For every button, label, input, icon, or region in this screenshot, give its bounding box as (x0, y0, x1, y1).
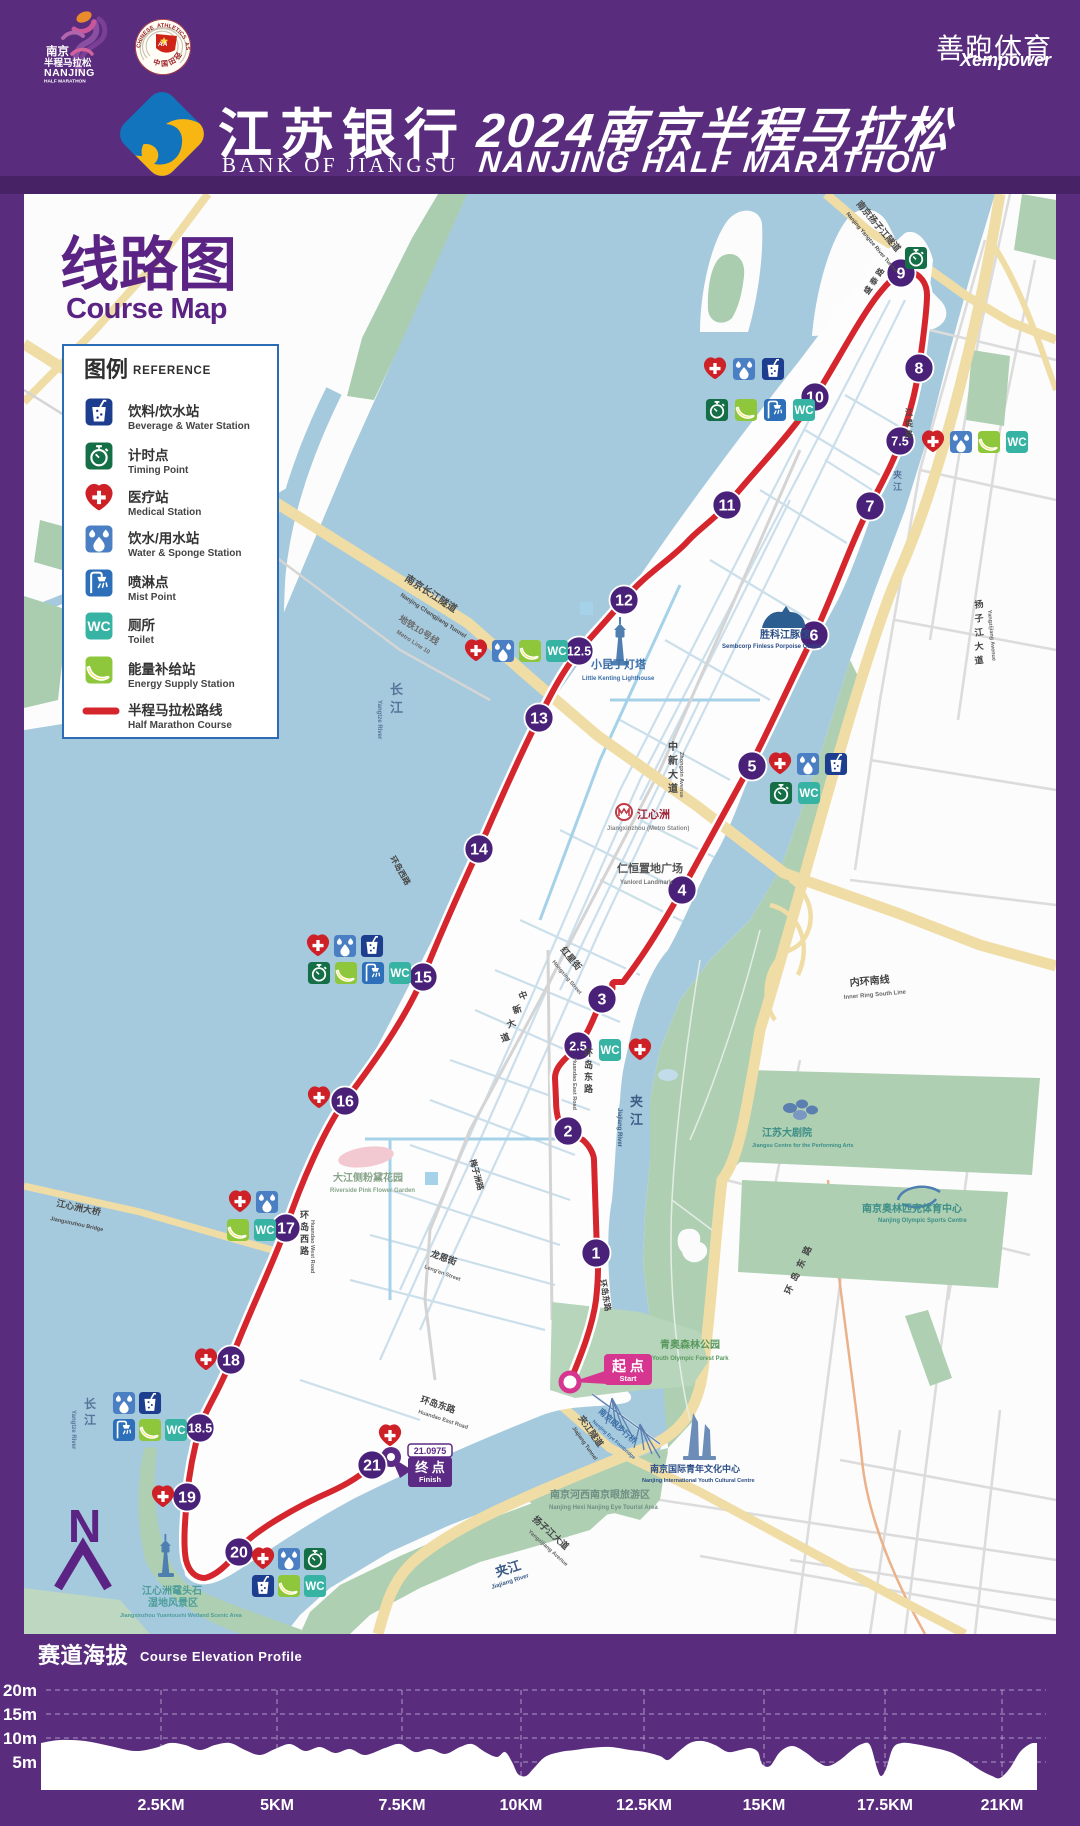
svg-text:Riverside Pink Flower Garden: Riverside Pink Flower Garden (330, 1188, 415, 1194)
svg-text:Jiajiang River: Jiajiang River (616, 1108, 622, 1148)
svg-text:江: 江 (630, 1112, 643, 1127)
svg-text:新: 新 (668, 754, 678, 767)
svg-text:2.5KM: 2.5KM (137, 1797, 184, 1814)
svg-text:厕所: 厕所 (128, 617, 155, 633)
svg-text:10KM: 10KM (500, 1797, 543, 1814)
svg-text:Course Elevation Profile: Course Elevation Profile (140, 1649, 302, 1664)
svg-text:Water & Sponge Station: Water & Sponge Station (128, 548, 242, 559)
svg-text:大: 大 (668, 768, 678, 781)
svg-text:医疗站: 医疗站 (128, 489, 169, 505)
svg-text:江: 江 (84, 1412, 96, 1427)
svg-text:NANJING: NANJING (44, 67, 95, 79)
svg-text:Course Map: Course Map (66, 293, 227, 325)
svg-text:12.5KM: 12.5KM (616, 1797, 672, 1814)
svg-text:夹: 夹 (630, 1094, 643, 1109)
svg-text:Jiangxinzhou Yuantoushi Wetlan: Jiangxinzhou Yuantoushi Wetland Scenic A… (120, 1613, 243, 1619)
svg-text:Yangtze River: Yangtze River (70, 1410, 76, 1450)
svg-text:6: 6 (810, 628, 819, 645)
svg-text:青奥森林公园: 青奥森林公园 (660, 1338, 720, 1351)
svg-text:计时点: 计时点 (128, 447, 169, 463)
svg-text:能量补给站: 能量补给站 (128, 661, 196, 677)
svg-text:南京奥林匹克体育中心: 南京奥林匹克体育中心 (862, 1202, 962, 1215)
svg-text:Nanjing Olympic Sports Centre: Nanjing Olympic Sports Centre (878, 1218, 967, 1224)
svg-text:Huandao East Road: Huandao East Road (571, 1058, 577, 1110)
svg-text:AA: AA (157, 41, 168, 48)
svg-text:Nanjing Hexi Nanjing Eye Touri: Nanjing Hexi Nanjing Eye Tourist Area (549, 1505, 658, 1511)
svg-text:12.5: 12.5 (567, 645, 591, 659)
svg-text:7: 7 (866, 499, 875, 516)
svg-text:17: 17 (277, 1221, 295, 1238)
svg-text:道: 道 (974, 654, 984, 666)
svg-text:胜科江豚馆: 胜科江豚馆 (759, 628, 810, 641)
svg-text:起 点: 起 点 (611, 1358, 644, 1374)
svg-text:线路图: 线路图 (60, 232, 237, 298)
svg-text:Finish: Finish (419, 1475, 442, 1484)
svg-text:Timing Point: Timing Point (128, 465, 189, 476)
svg-text:3: 3 (598, 992, 607, 1009)
svg-text:南京国际青年文化中心: 南京国际青年文化中心 (650, 1463, 740, 1474)
svg-text:5: 5 (748, 759, 757, 776)
svg-text:Half Marathon Course: Half Marathon Course (128, 720, 232, 731)
svg-text:2: 2 (564, 1124, 573, 1141)
svg-text:大: 大 (974, 640, 984, 652)
svg-text:江心洲鼋头石: 江心洲鼋头石 (142, 1584, 202, 1597)
svg-text:路: 路 (905, 429, 914, 439)
svg-text:Zhongxin Avenue: Zhongxin Avenue (678, 752, 684, 798)
svg-text:扬: 扬 (974, 598, 984, 610)
svg-text:HALF MARATHON: HALF MARATHON (44, 79, 86, 85)
svg-text:江心洲: 江心洲 (637, 807, 670, 821)
svg-text:Nanjing International Youth Cu: Nanjing International Youth Cultural Cen… (642, 1478, 755, 1484)
svg-text:南京河西南京眼旅游区: 南京河西南京眼旅游区 (550, 1488, 650, 1501)
svg-text:13: 13 (530, 711, 548, 728)
svg-text:东: 东 (584, 1071, 593, 1082)
svg-text:子: 子 (974, 613, 984, 624)
svg-text:岛: 岛 (300, 1221, 309, 1232)
svg-text:Sembcorp Finless Porpoise Cent: Sembcorp Finless Porpoise Centre (722, 644, 822, 650)
svg-text:15m: 15m (3, 1705, 37, 1724)
svg-text:环: 环 (584, 1048, 593, 1058)
svg-text:Jiangsu Centre for the Perform: Jiangsu Centre for the Performing Arts (752, 1143, 854, 1149)
svg-text:Jiangxinzhou (Metro Station): Jiangxinzhou (Metro Station) (607, 826, 689, 832)
svg-text:9: 9 (897, 266, 906, 283)
svg-text:江: 江 (893, 481, 902, 492)
svg-text:Energy Supply Station: Energy Supply Station (128, 679, 235, 690)
svg-text:赛道海拔: 赛道海拔 (37, 1643, 129, 1668)
svg-text:1: 1 (592, 1246, 601, 1263)
svg-text:Toilet: Toilet (128, 635, 155, 646)
svg-text:14: 14 (470, 842, 488, 859)
svg-text:18.5: 18.5 (188, 1422, 212, 1436)
svg-text:Medical Station: Medical Station (128, 507, 201, 518)
svg-text:饮水/用水站: 饮水/用水站 (127, 530, 200, 546)
svg-text:Yangtze River: Yangtze River (376, 700, 382, 740)
svg-text:Youth Olympic Forest Park: Youth Olympic Forest Park (652, 1356, 729, 1362)
svg-text:21KM: 21KM (981, 1797, 1024, 1814)
svg-text:江苏大剧院: 江苏大剧院 (762, 1126, 812, 1139)
svg-text:17.5KM: 17.5KM (857, 1797, 913, 1814)
svg-text:15: 15 (414, 970, 432, 987)
svg-text:19: 19 (178, 1490, 196, 1507)
svg-text:长: 长 (84, 1396, 97, 1411)
svg-text:11: 11 (719, 498, 736, 515)
svg-text:15KM: 15KM (743, 1797, 786, 1814)
svg-text:喷淋点: 喷淋点 (128, 574, 169, 590)
svg-text:REFERENCE: REFERENCE (133, 365, 211, 377)
svg-text:5KM: 5KM (260, 1797, 294, 1814)
svg-text:湿地风景区: 湿地风景区 (148, 1596, 198, 1609)
svg-text:Yanlord Landmark: Yanlord Landmark (620, 880, 673, 886)
svg-text:12: 12 (615, 593, 633, 610)
svg-text:岛: 岛 (584, 1059, 593, 1070)
svg-text:图例: 图例 (84, 357, 128, 382)
svg-text:5m: 5m (12, 1753, 37, 1772)
svg-text:8: 8 (915, 361, 924, 378)
svg-text:4: 4 (678, 883, 687, 900)
svg-text:终 点: 终 点 (415, 1460, 445, 1475)
svg-text:江: 江 (390, 700, 403, 715)
svg-text:路: 路 (300, 1245, 310, 1256)
svg-text:中: 中 (668, 740, 678, 753)
svg-text:西: 西 (300, 1234, 309, 1244)
svg-text:16: 16 (336, 1094, 354, 1111)
svg-text:长: 长 (390, 682, 404, 697)
svg-text:Huandao West Road: Huandao West Road (309, 1220, 315, 1273)
svg-text:Beverage & Water Station: Beverage & Water Station (128, 421, 250, 432)
svg-text:7.5KM: 7.5KM (378, 1797, 425, 1814)
svg-text:Little Kenting Lighthouse: Little Kenting Lighthouse (582, 676, 655, 682)
svg-text:20m: 20m (3, 1681, 37, 1700)
svg-text:堤: 堤 (905, 418, 914, 428)
svg-text:18: 18 (222, 1353, 240, 1370)
svg-text:江: 江 (974, 626, 984, 638)
svg-text:Start: Start (619, 1374, 637, 1383)
svg-text:江: 江 (905, 407, 913, 417)
svg-text:小昆丁灯塔: 小昆丁灯塔 (590, 657, 647, 671)
svg-text:环: 环 (300, 1210, 309, 1220)
svg-text:仁恒置地广场: 仁恒置地广场 (617, 861, 683, 875)
svg-text:Mist Point: Mist Point (128, 592, 176, 603)
svg-text:路: 路 (584, 1083, 594, 1094)
svg-text:半程马拉松路线: 半程马拉松路线 (128, 702, 223, 718)
svg-text:饮料/饮水站: 饮料/饮水站 (127, 403, 200, 419)
svg-text:20: 20 (230, 1545, 248, 1562)
svg-text:10m: 10m (3, 1729, 37, 1748)
svg-text:21: 21 (363, 1458, 381, 1475)
svg-text:南京: 南京 (46, 44, 69, 58)
svg-text:21.0975: 21.0975 (414, 1446, 447, 1456)
svg-text:大江侧粉黛花园: 大江侧粉黛花园 (333, 1171, 403, 1184)
svg-text:夹: 夹 (893, 469, 902, 480)
svg-text:道: 道 (668, 782, 678, 795)
